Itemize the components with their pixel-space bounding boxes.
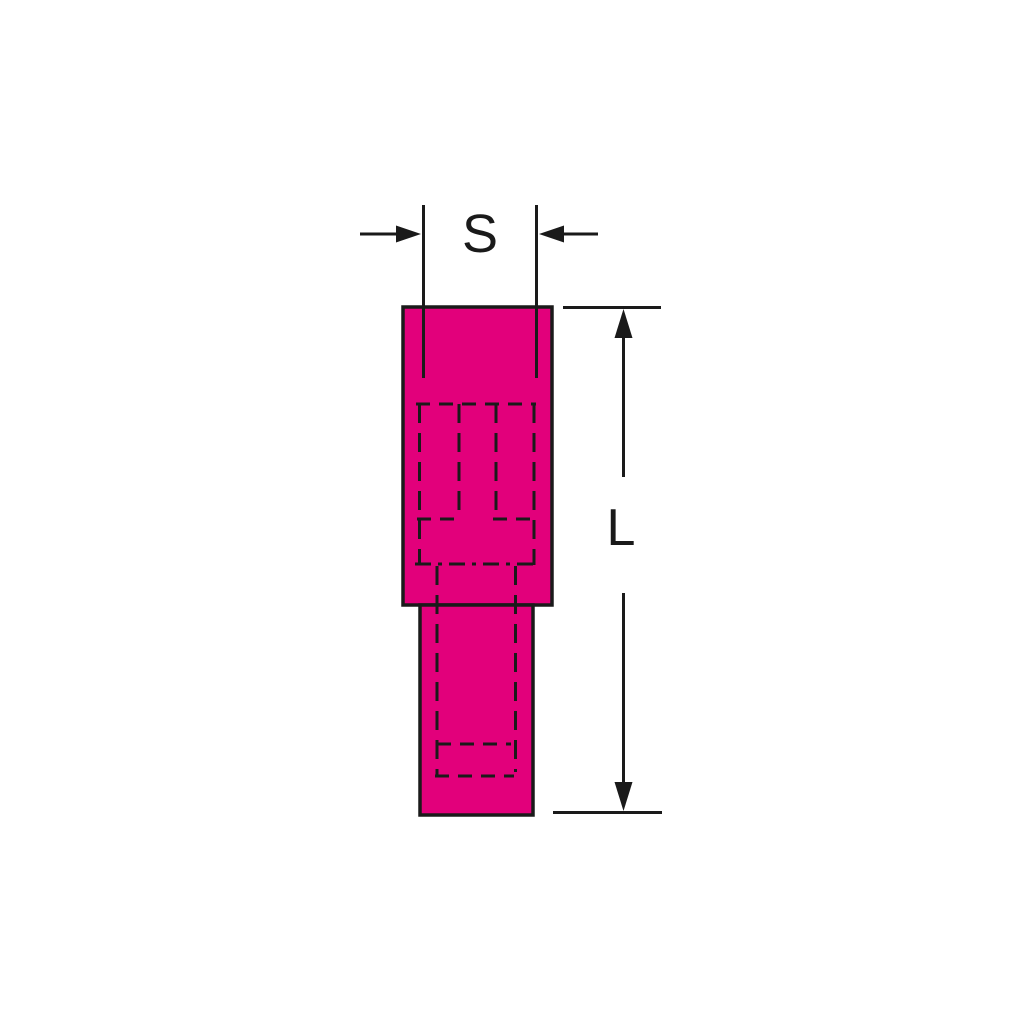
terminal-body: [403, 307, 552, 815]
terminal-dimension-diagram: S L: [0, 0, 1024, 1024]
insulation-sleeve-body: [403, 307, 552, 605]
diagram-svg: S L: [0, 0, 1024, 1024]
s-dimension-label: S: [462, 204, 498, 264]
l-dimension-label: L: [607, 499, 636, 557]
